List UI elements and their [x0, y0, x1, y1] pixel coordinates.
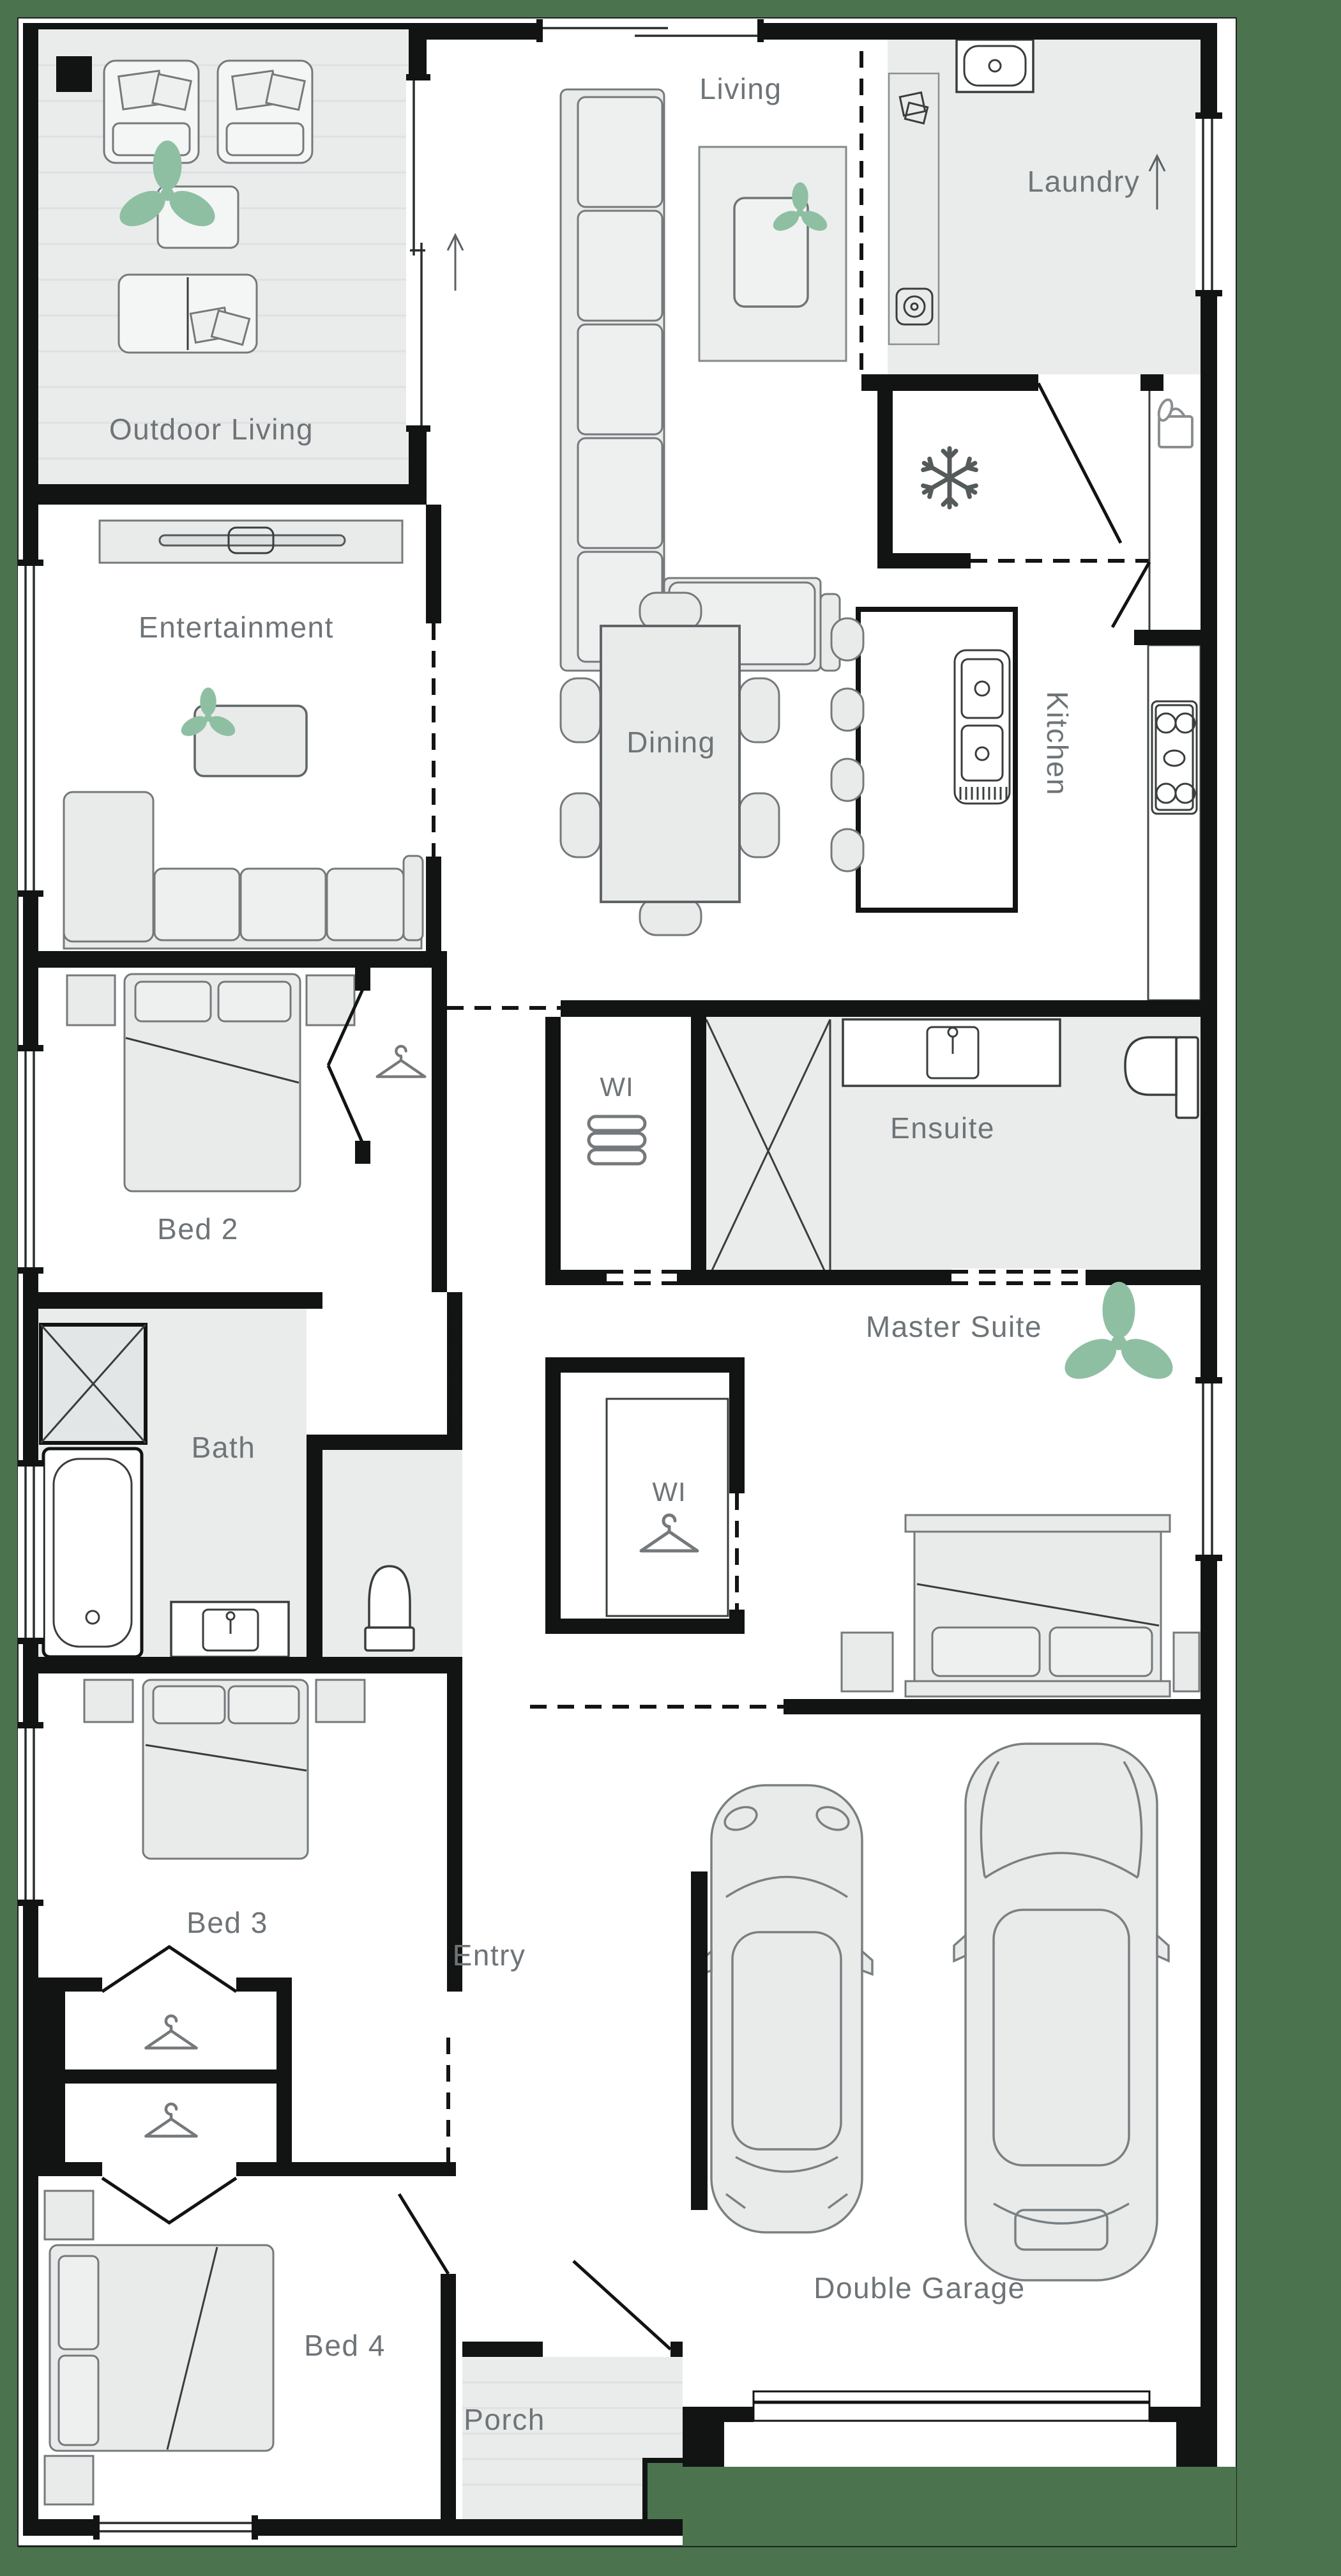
bedside-table [307, 975, 354, 1025]
bath-vanity [171, 1602, 289, 1657]
label-bath: Bath [192, 1431, 256, 1464]
label-laundry: Laundry [1027, 165, 1140, 198]
bathtub-icon [43, 1449, 142, 1657]
label-bed2: Bed 2 [157, 1212, 239, 1246]
window [536, 19, 764, 42]
garage-door [754, 2391, 1149, 2421]
label-wi-hall: WI [600, 1072, 633, 1102]
tv-unit [100, 521, 402, 563]
label-bed3: Bed 3 [186, 1906, 268, 1939]
outdoor-armchair [104, 61, 199, 163]
kitchen-bench [1148, 645, 1201, 1000]
window [406, 74, 430, 432]
label-living: Living [699, 72, 782, 105]
window [18, 1045, 43, 1274]
toilet-icon [365, 1566, 414, 1650]
label-entertainment: Entertainment [139, 611, 334, 644]
bedside-table [842, 1633, 893, 1691]
bedside-table [316, 1680, 365, 1722]
deck-post [56, 56, 92, 92]
label-garage: Double Garage [814, 2271, 1025, 2305]
window [1195, 1377, 1222, 1561]
dining-chair [640, 898, 701, 935]
bedside-table [67, 975, 115, 1025]
bedside-table [45, 2456, 93, 2504]
label-bed4: Bed 4 [304, 2329, 386, 2362]
stool [831, 689, 863, 731]
label-wi-master: WI [652, 1477, 686, 1507]
label-kitchen: Kitchen [1041, 691, 1074, 796]
outdoor-armchair [218, 61, 312, 163]
ensuite-vanity [843, 1019, 1060, 1086]
dining-chair [561, 678, 600, 742]
label-ensuite: Ensuite [890, 1111, 995, 1145]
bedside-table [84, 1680, 133, 1722]
outdoor-sofa [119, 275, 257, 353]
dining-table [601, 626, 739, 902]
laundry-sink [957, 40, 1033, 92]
dining-chair [561, 793, 600, 857]
window [1195, 112, 1222, 296]
label-entry: Entry [453, 1939, 526, 1972]
label-master-suite: Master Suite [866, 1310, 1042, 1343]
bedside-table [1174, 1633, 1199, 1691]
stool [831, 618, 863, 660]
living-rug [699, 147, 846, 361]
window [18, 1722, 43, 1906]
window [18, 1460, 43, 1644]
window [93, 2515, 258, 2540]
stool [831, 829, 863, 871]
label-porch: Porch [464, 2403, 545, 2436]
window [18, 560, 43, 897]
kitchen-island [831, 609, 1015, 910]
car-icon [954, 1744, 1169, 2280]
label-outdoor-living: Outdoor Living [109, 413, 314, 446]
dining-chair [640, 593, 701, 630]
label-dining: Dining [626, 726, 715, 759]
dining-chair [739, 793, 779, 857]
floor-plan: Living Laundry Outdoor Living Entertainm… [0, 0, 1341, 2576]
tv-icon [160, 535, 345, 545]
car-icon [701, 1785, 872, 2232]
dining-chair [739, 678, 779, 742]
bedside-table [45, 2191, 93, 2239]
stool [831, 759, 863, 801]
laundry-bench [889, 73, 939, 344]
